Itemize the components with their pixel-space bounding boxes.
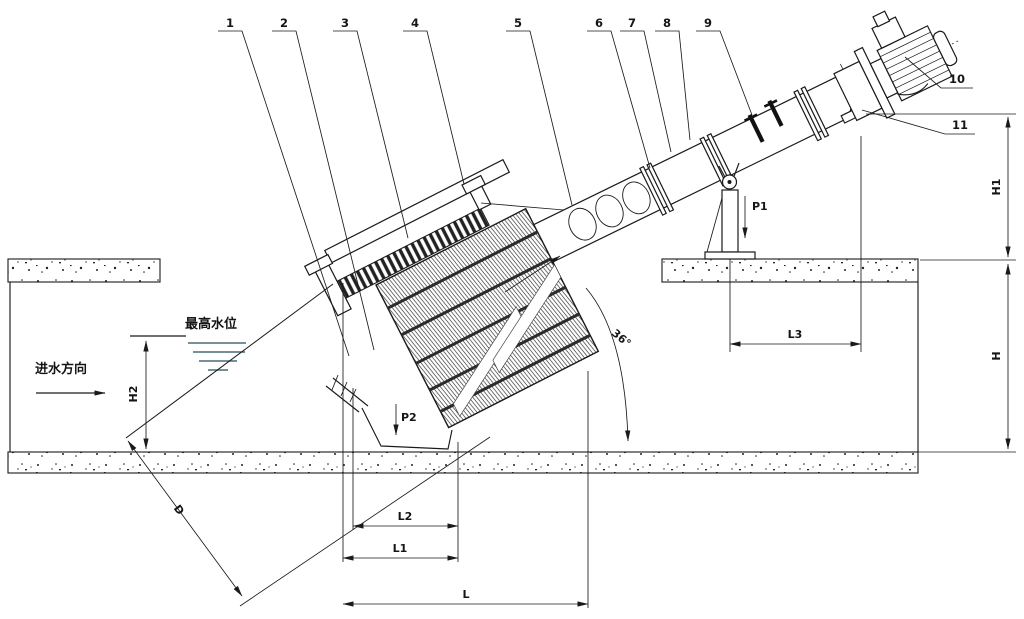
guide-rungs bbox=[332, 375, 356, 402]
throat-line bbox=[481, 203, 564, 210]
max-water-level-label: 最高水位 bbox=[185, 316, 237, 332]
technical-drawing: H1 H H2 L3 L2 L1 L bbox=[0, 0, 1024, 619]
inflow-direction-label: 进水方向 bbox=[35, 361, 87, 377]
drawing-canvas: H1 H H2 L3 L2 L1 L bbox=[0, 0, 1024, 619]
dim-l-label: L bbox=[462, 588, 469, 601]
inflow-direction: 进水方向 bbox=[35, 361, 105, 393]
dim-p2: P2 bbox=[396, 404, 417, 435]
callout-5: 5 bbox=[506, 16, 572, 205]
dim-l: L bbox=[343, 588, 588, 604]
dim-angle-label: 36° bbox=[609, 327, 633, 350]
dim-d-label: D bbox=[171, 502, 187, 517]
callout-8: 8 bbox=[655, 16, 690, 140]
callout-2: 2 bbox=[272, 16, 374, 350]
callout-2-label: 2 bbox=[280, 16, 288, 30]
callout-9: 9 bbox=[696, 16, 752, 115]
callout-7-label: 7 bbox=[628, 16, 636, 30]
dim-h2-label: H2 bbox=[127, 386, 140, 403]
callout-6: 6 bbox=[587, 16, 650, 168]
dim-h: H bbox=[990, 264, 1008, 449]
callout-11-label: 11 bbox=[952, 118, 968, 132]
dim-l1: L1 bbox=[343, 542, 458, 558]
dim-p1-label: P1 bbox=[752, 200, 768, 213]
dim-l2-label: L2 bbox=[398, 510, 413, 523]
callout-6-label: 6 bbox=[595, 16, 603, 30]
callout-3-label: 3 bbox=[341, 16, 349, 30]
callout-4: 4 bbox=[403, 16, 464, 184]
dim-l3-label: L3 bbox=[788, 328, 803, 341]
dim-h1: H1 bbox=[990, 117, 1008, 257]
right-wall-concrete bbox=[662, 259, 918, 282]
dim-l2: L2 bbox=[353, 510, 458, 526]
dim-h-label: H bbox=[990, 351, 1003, 360]
dim-l1-label: L1 bbox=[393, 542, 408, 555]
dim-p2-label: P2 bbox=[401, 411, 417, 424]
water-level-symbol bbox=[130, 336, 246, 370]
dim-h1-label: H1 bbox=[990, 179, 1003, 196]
callout-9-label: 9 bbox=[704, 16, 712, 30]
callout-3: 3 bbox=[333, 16, 408, 238]
callout-10-label: 10 bbox=[949, 72, 965, 86]
callout-5-label: 5 bbox=[514, 16, 522, 30]
dim-p1: P1 bbox=[745, 196, 768, 238]
pivot-pin bbox=[728, 180, 732, 184]
leg-base-plate bbox=[705, 252, 755, 259]
callout-1: 1 bbox=[218, 16, 349, 356]
front-guide-rails bbox=[326, 378, 368, 412]
screen-body bbox=[302, 160, 600, 453]
callout-1-label: 1 bbox=[226, 16, 234, 30]
dim-l3: L3 bbox=[730, 328, 861, 344]
leg-column bbox=[722, 190, 738, 252]
dim-angle: 36° bbox=[586, 288, 633, 441]
callout-4-label: 4 bbox=[411, 16, 419, 30]
callout-8-label: 8 bbox=[663, 16, 671, 30]
callout-7: 7 bbox=[620, 16, 671, 152]
screen-front-face-line bbox=[126, 284, 333, 438]
dim-h2: H2 bbox=[127, 341, 146, 449]
left-wall-concrete bbox=[8, 259, 160, 282]
